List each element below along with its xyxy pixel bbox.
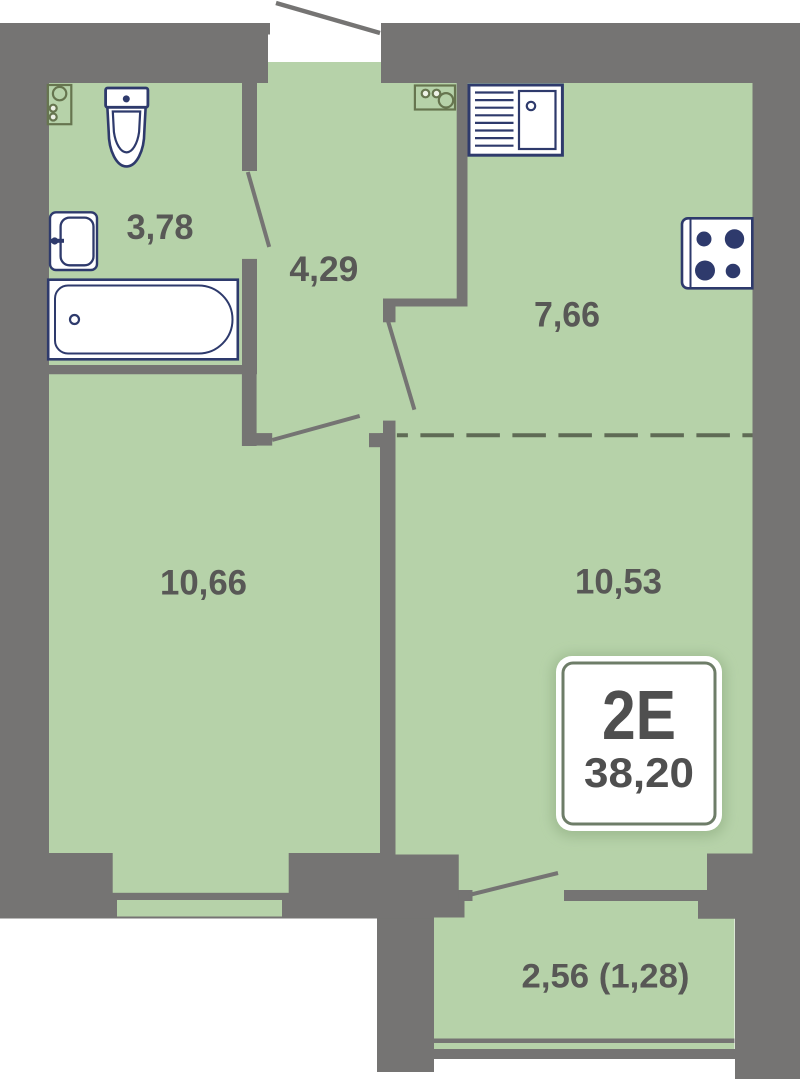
svg-text:2E: 2E <box>602 676 676 754</box>
svg-text:7,66: 7,66 <box>534 295 600 334</box>
svg-text:2,56 (1,28): 2,56 (1,28) <box>522 958 690 996</box>
svg-text:38,20: 38,20 <box>584 749 694 796</box>
svg-text:4,29: 4,29 <box>289 250 358 289</box>
svg-text:10,66: 10,66 <box>160 564 247 603</box>
svg-text:10,53: 10,53 <box>575 563 662 602</box>
svg-text:3,78: 3,78 <box>127 208 194 247</box>
